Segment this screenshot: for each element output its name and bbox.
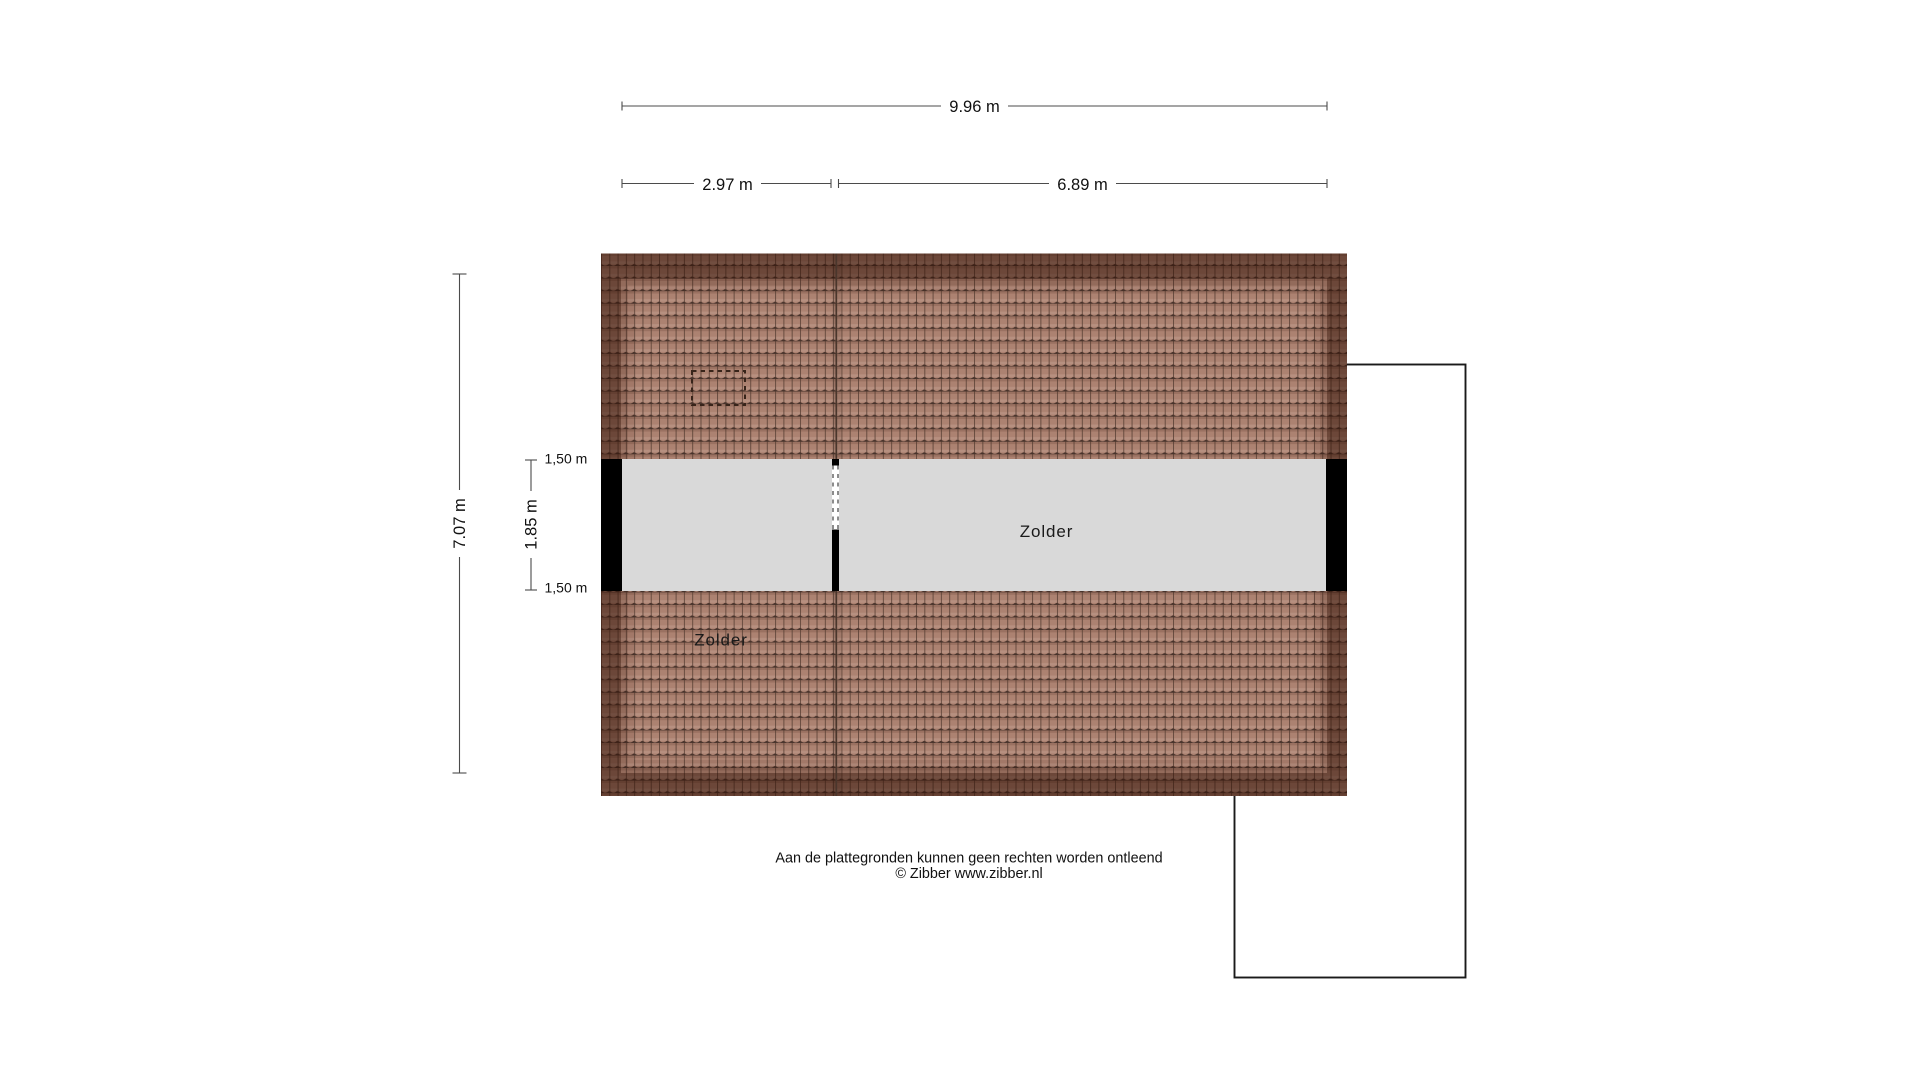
svg-text:7.07 m: 7.07 m bbox=[451, 498, 469, 548]
svg-text:1,50 m: 1,50 m bbox=[545, 451, 588, 467]
svg-text:Zolder: Zolder bbox=[694, 631, 748, 650]
svg-text:6.89 m: 6.89 m bbox=[1057, 176, 1107, 194]
svg-text:1,50 m: 1,50 m bbox=[545, 580, 588, 596]
svg-text:© Zibber www.zibber.nl: © Zibber www.zibber.nl bbox=[895, 866, 1042, 882]
svg-text:1.85 m: 1.85 m bbox=[523, 499, 541, 549]
svg-text:9.96 m: 9.96 m bbox=[949, 98, 999, 116]
svg-text:2.97 m: 2.97 m bbox=[702, 176, 752, 194]
svg-text:Zolder: Zolder bbox=[1020, 522, 1074, 541]
svg-text:Aan de plattegronden kunnen ge: Aan de plattegronden kunnen geen rechten… bbox=[775, 851, 1162, 867]
